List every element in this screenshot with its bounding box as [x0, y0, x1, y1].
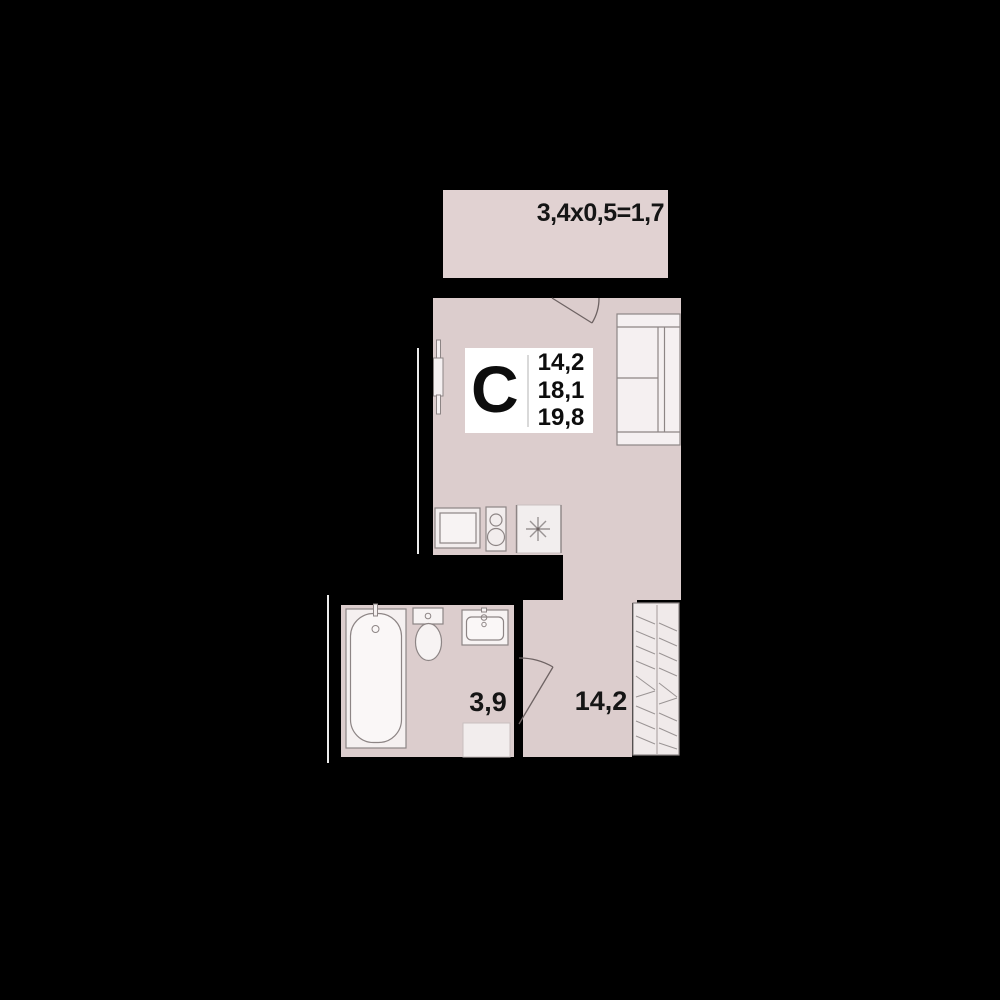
fixtures-layer	[0, 0, 1000, 1000]
door-threshold	[463, 723, 510, 757]
unit-badge: C 14,2 18,1 19,8	[465, 348, 593, 433]
badge-divider	[527, 355, 529, 427]
floorplan-canvas: 3,4x0,5=1,7 C 14,2 18,1 19,8 3,9 14,2	[0, 0, 1000, 1000]
washbasin-icon	[462, 608, 508, 645]
kitchen-sink-icon	[435, 508, 480, 548]
wardrobe-hatch-icon	[633, 603, 679, 755]
area-total-with-balcony: 19,8	[538, 404, 585, 432]
stove-icon	[486, 507, 506, 551]
unit-letter: C	[471, 356, 519, 422]
bathtub-icon	[346, 604, 406, 748]
radiator-icon	[434, 340, 444, 414]
toilet-icon	[413, 608, 443, 661]
balcony-dimensions-label: 3,4x0,5=1,7	[443, 199, 664, 228]
unit-areas: 14,2 18,1 19,8	[538, 349, 585, 432]
area-total: 18,1	[538, 377, 585, 405]
sofa-icon	[617, 314, 680, 445]
room-area-label: 14,2	[563, 686, 639, 717]
door-swing-icon	[519, 658, 553, 724]
bathroom-area-label: 3,9	[458, 687, 518, 718]
area-living: 14,2	[538, 349, 585, 377]
vent-asterisk-icon	[517, 505, 562, 553]
door-swing-icon	[552, 298, 599, 323]
